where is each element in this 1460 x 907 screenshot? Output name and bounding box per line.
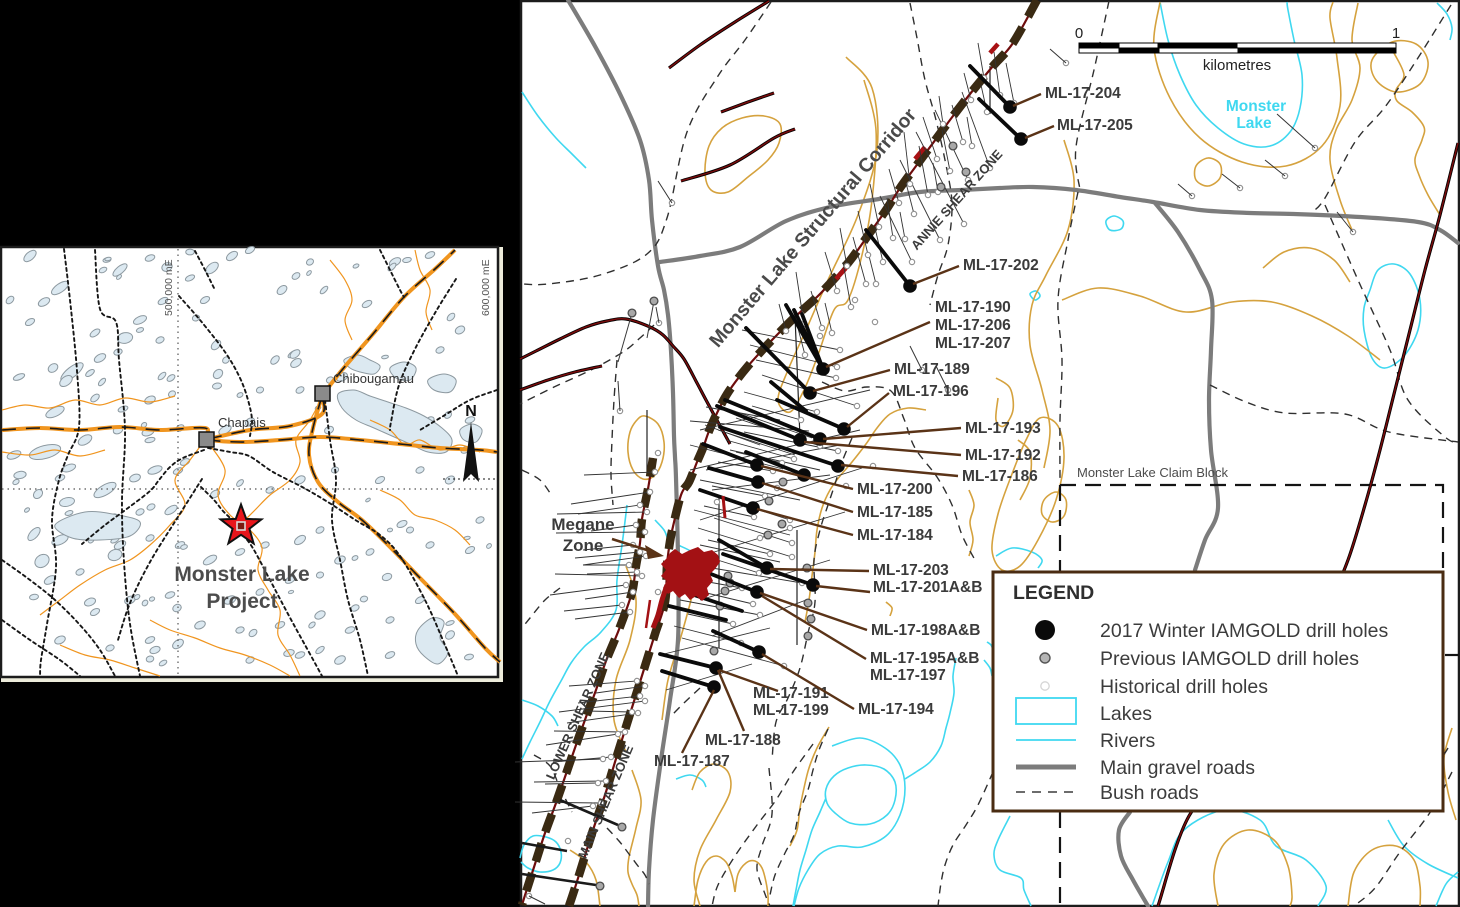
svg-text:2017 Winter IAMGOLD drill hole: 2017 Winter IAMGOLD drill holes [1100, 620, 1389, 642]
svg-text:Lakes: Lakes [1100, 703, 1152, 725]
svg-text:ML-17-199: ML-17-199 [753, 702, 829, 719]
svg-text:ML-17-193: ML-17-193 [965, 420, 1041, 437]
svg-text:ML-17-200: ML-17-200 [857, 481, 933, 498]
svg-text:Historical drill holes: Historical drill holes [1100, 676, 1268, 698]
svg-text:ML-17-184: ML-17-184 [857, 527, 933, 544]
svg-text:Rivers: Rivers [1100, 730, 1156, 752]
svg-text:ML-17-196: ML-17-196 [893, 383, 969, 400]
svg-text:ML-17-188: ML-17-188 [705, 732, 781, 749]
svg-text:ML-17-201A&B: ML-17-201A&B [873, 579, 982, 596]
svg-text:Monster Lake: Monster Lake [174, 563, 309, 586]
svg-text:ML-17-198A&B: ML-17-198A&B [871, 622, 980, 639]
svg-text:Chapais: Chapais [218, 415, 266, 430]
svg-text:ML-17-205: ML-17-205 [1057, 117, 1133, 134]
svg-text:Monster Lake Claim Block: Monster Lake Claim Block [1077, 465, 1228, 480]
svg-text:1: 1 [1392, 25, 1400, 42]
svg-text:0: 0 [1075, 25, 1083, 42]
svg-text:ML-17-190: ML-17-190 [935, 299, 1011, 316]
svg-text:ML-17-192: ML-17-192 [965, 447, 1041, 464]
svg-text:Bush roads: Bush roads [1100, 782, 1199, 804]
svg-text:Monster: Monster [1226, 98, 1286, 115]
svg-text:500,000 mE: 500,000 mE [163, 259, 175, 316]
svg-text:ML-17-189: ML-17-189 [894, 361, 970, 378]
svg-text:Megane: Megane [551, 515, 614, 534]
svg-text:600,000 mE: 600,000 mE [480, 259, 492, 316]
svg-text:kilometres: kilometres [1203, 57, 1271, 74]
svg-text:ML-17-187: ML-17-187 [654, 753, 730, 770]
svg-text:ML-17-206: ML-17-206 [935, 317, 1011, 334]
svg-text:Lake: Lake [1236, 115, 1272, 132]
svg-text:Previous IAMGOLD drill holes: Previous IAMGOLD drill holes [1100, 648, 1359, 670]
svg-text:LEGEND: LEGEND [1013, 582, 1094, 604]
svg-text:N: N [465, 403, 477, 420]
svg-text:ML-17-203: ML-17-203 [873, 562, 949, 579]
svg-text:Main gravel roads: Main gravel roads [1100, 757, 1255, 779]
svg-text:ML-17-204: ML-17-204 [1045, 85, 1121, 102]
svg-text:ML-17-186: ML-17-186 [962, 468, 1038, 485]
svg-text:ML-17-207: ML-17-207 [935, 335, 1011, 352]
svg-text:ML-17-197: ML-17-197 [870, 667, 946, 684]
svg-text:Project: Project [206, 590, 277, 613]
svg-text:Chibougamau: Chibougamau [333, 371, 414, 386]
svg-text:Zone: Zone [563, 536, 604, 555]
svg-text:ML-17-195A&B: ML-17-195A&B [870, 650, 979, 667]
svg-text:ML-17-202: ML-17-202 [963, 257, 1039, 274]
svg-text:ML-17-194: ML-17-194 [858, 701, 934, 718]
svg-text:ML-17-185: ML-17-185 [857, 504, 933, 521]
